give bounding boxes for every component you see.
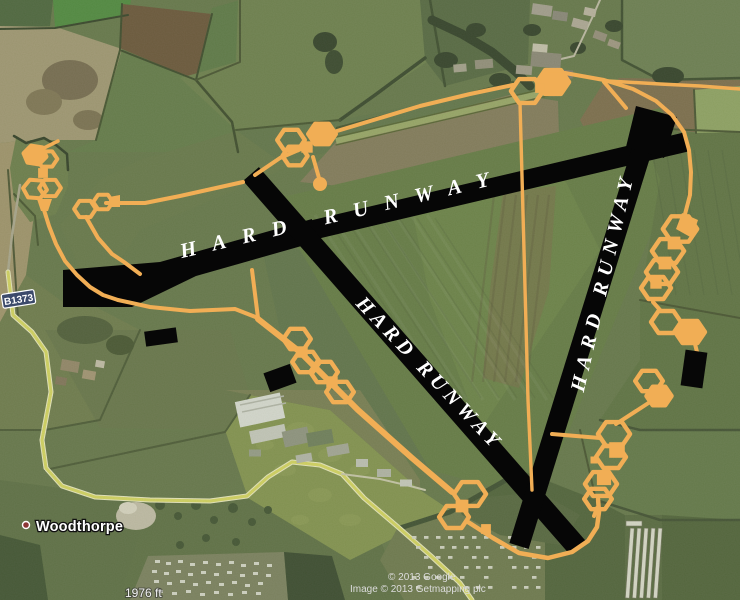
svg-text:© 2013 Google: © 2013 Google [388,572,456,583]
svg-text:Image © 2013 Getmapping plc: Image © 2013 Getmapping plc [350,584,486,595]
svg-text:Woodthorpe: Woodthorpe [36,519,123,535]
svg-text:1976 ft: 1976 ft [125,586,162,600]
